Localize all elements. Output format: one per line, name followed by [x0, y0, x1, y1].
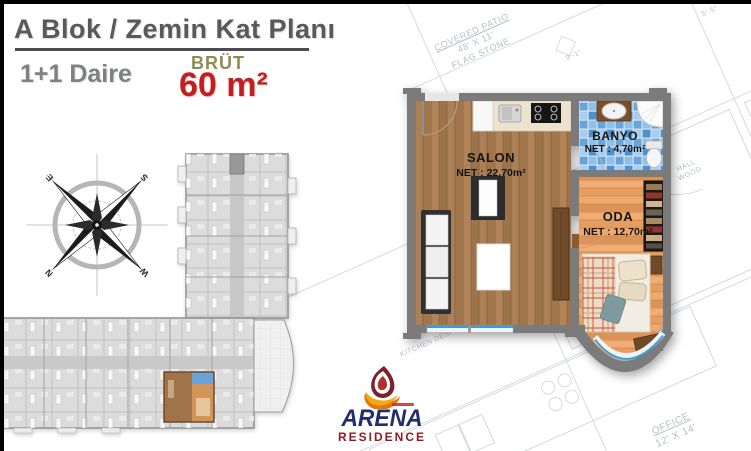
cooktop [531, 103, 561, 123]
title-underline [15, 48, 309, 51]
salon-net-label: NET : 22,70m² [456, 167, 526, 179]
pillow [618, 260, 647, 282]
logo-subbrand-text: RESIDENCE [334, 430, 430, 444]
toilet [646, 141, 662, 168]
banyo-label: BANYO [592, 129, 638, 143]
salon-window [427, 326, 513, 333]
wardrobe [644, 181, 664, 251]
bathroom-vanity-sink [597, 101, 631, 121]
left-border [0, 0, 4, 451]
bed [582, 254, 650, 332]
overview-lobby-grid [254, 320, 294, 412]
salon-label: SALON [467, 150, 515, 165]
fridge [473, 101, 493, 131]
kitchen-counter [473, 101, 571, 131]
overview-wing [2, 318, 254, 433]
sofa [421, 210, 451, 314]
top-border [0, 0, 751, 4]
compass-rose-icon: N S E W [22, 150, 172, 300]
brand-logo: ARENA RESIDENCE [334, 365, 430, 444]
oda-net-label: NET : 12,70m² [583, 226, 653, 238]
banyo-net-label: NET : 4,70m² [585, 144, 646, 155]
divider-cabinet [553, 208, 569, 300]
overview-tower [178, 154, 296, 318]
apartment-plan: SALON NET : 22,70m² BANYO NET : 4,70m² O… [399, 84, 691, 402]
gross-area-value: 60 m² [179, 66, 268, 105]
floorplan-flyer: COVERED PATIO 48' X 11' FLAG STONE OFFIC… [0, 0, 751, 451]
unit-type-label: 1+1 Daire [20, 60, 132, 89]
entrance-threshold [425, 93, 459, 101]
logo-brand-text: ARENA [336, 409, 427, 429]
tv-unit [471, 176, 505, 220]
page-title: A Blok / Zemin Kat Planı [14, 14, 336, 45]
compass-s-label: S [139, 172, 150, 183]
oda-label: ODA [603, 209, 634, 224]
overview-highlighted-unit [164, 372, 214, 422]
coffee-table [477, 244, 510, 290]
